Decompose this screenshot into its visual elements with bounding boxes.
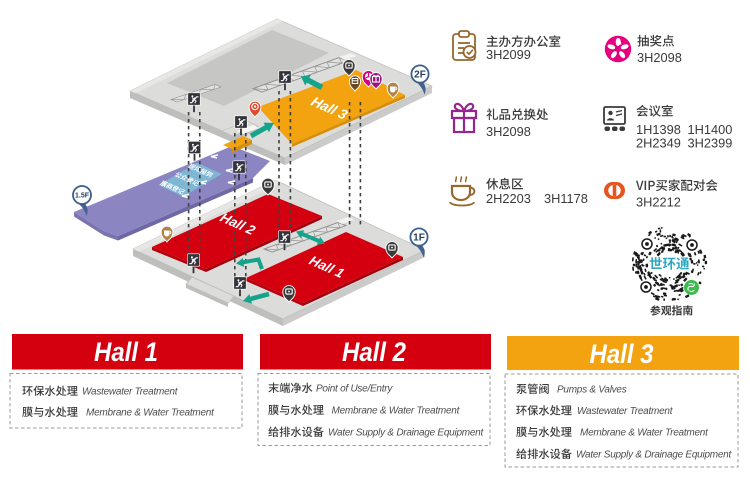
svg-text:Water Supply & Drainage Equipm: Water Supply & Drainage Equipment [328, 428, 484, 439]
svg-text:2H2349: 2H2349 [636, 136, 681, 151]
svg-text:Water Supply & Drainage Equipm: Water Supply & Drainage Equipment [576, 450, 732, 461]
svg-text:Wastewater Treatment: Wastewater Treatment [577, 406, 674, 417]
svg-text:Hall 2: Hall 2 [342, 337, 406, 367]
svg-text:1.5F: 1.5F [75, 193, 90, 200]
svg-text:3H1178: 3H1178 [544, 191, 588, 206]
svg-text:2F: 2F [414, 70, 426, 81]
svg-text:Point of Use/Entry: Point of Use/Entry [316, 384, 393, 395]
svg-text:Membrane & Water Treatment: Membrane & Water Treatment [86, 408, 215, 419]
svg-text:Membrane & Water Treatment: Membrane & Water Treatment [332, 406, 461, 417]
svg-text:3H2099: 3H2099 [486, 47, 531, 62]
svg-text:Membrane & Water Treatment: Membrane & Water Treatment [580, 428, 709, 439]
svg-text:Hall 1: Hall 1 [94, 337, 158, 367]
svg-text:Pumps & Valves: Pumps & Valves [557, 385, 627, 396]
svg-text:2H2203: 2H2203 [486, 191, 531, 206]
svg-text:3H2399: 3H2399 [688, 136, 733, 151]
svg-text:1F: 1F [413, 233, 425, 244]
svg-text:3H2098: 3H2098 [486, 124, 531, 139]
svg-text:3H2212: 3H2212 [636, 195, 681, 210]
svg-text:3H2098: 3H2098 [637, 50, 682, 65]
svg-text:Hall 3: Hall 3 [590, 339, 654, 369]
svg-text:Wastewater Treatment: Wastewater Treatment [82, 387, 179, 398]
